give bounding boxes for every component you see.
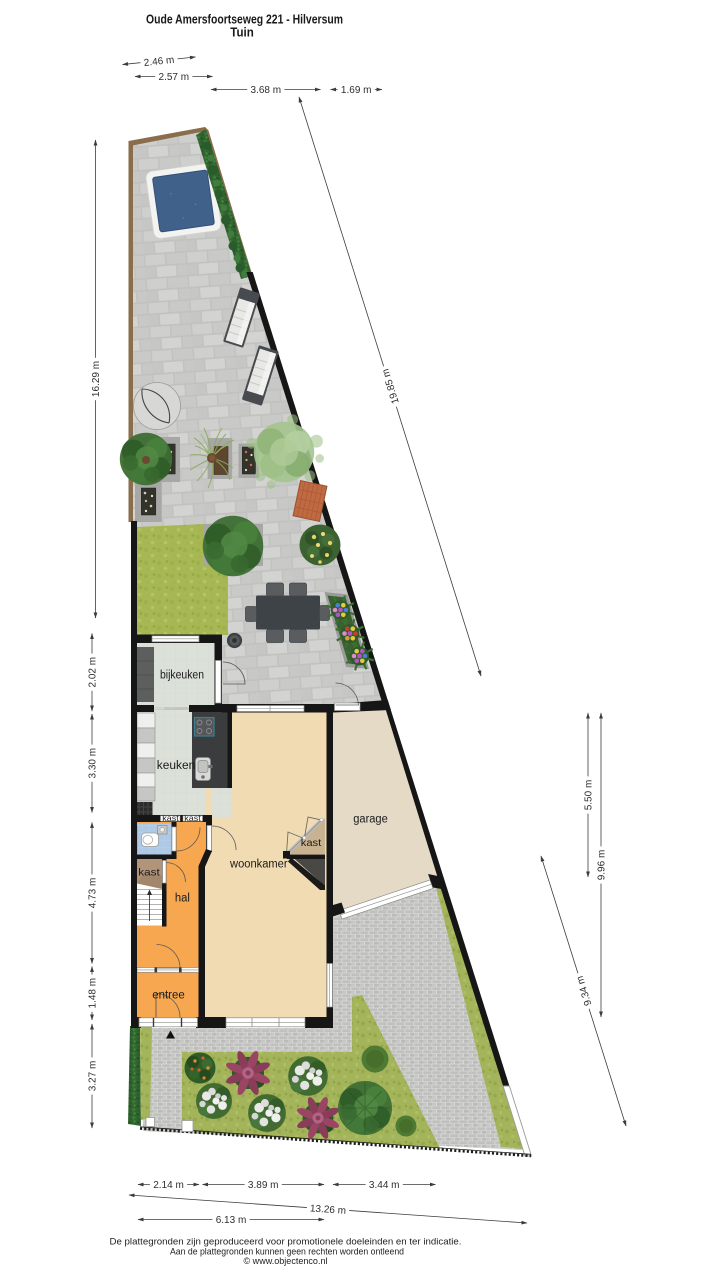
svg-text:keuken: keuken	[157, 760, 196, 772]
svg-text:Tuin: Tuin	[230, 25, 254, 40]
svg-text:3.27 m: 3.27 m	[88, 1061, 99, 1092]
svg-text:bijkeuken: bijkeuken	[160, 670, 204, 682]
svg-text:1.48 m: 1.48 m	[88, 978, 99, 1009]
svg-text:3.89 m: 3.89 m	[248, 1180, 279, 1191]
svg-text:kast: kast	[301, 837, 322, 849]
svg-text:3.68 m: 3.68 m	[251, 85, 282, 96]
svg-text:garage: garage	[353, 814, 388, 826]
svg-text:entree: entree	[152, 990, 185, 1002]
svg-text:5.50 m: 5.50 m	[584, 780, 595, 811]
svg-text:woonkamer: woonkamer	[229, 859, 288, 871]
svg-text:3.30 m: 3.30 m	[88, 748, 99, 779]
svg-text:hal: hal	[175, 893, 190, 905]
svg-text:2.02 m: 2.02 m	[88, 657, 99, 688]
svg-text:6.13 m: 6.13 m	[216, 1215, 247, 1226]
svg-text:16.29 m: 16.29 m	[91, 361, 102, 397]
svg-text:2.57 m: 2.57 m	[159, 72, 190, 83]
svg-text:kast: kast	[138, 867, 160, 879]
svg-text:2.14 m: 2.14 m	[153, 1180, 184, 1191]
svg-text:© www.objectenco.nl: © www.objectenco.nl	[244, 1256, 328, 1267]
svg-text:9.96 m: 9.96 m	[597, 850, 608, 881]
svg-text:kast: kast	[162, 813, 179, 823]
svg-text:3.44 m: 3.44 m	[369, 1180, 400, 1191]
svg-text:4.73 m: 4.73 m	[88, 878, 99, 909]
svg-text:1.69 m: 1.69 m	[341, 85, 372, 96]
svg-text:kast: kast	[184, 813, 201, 823]
